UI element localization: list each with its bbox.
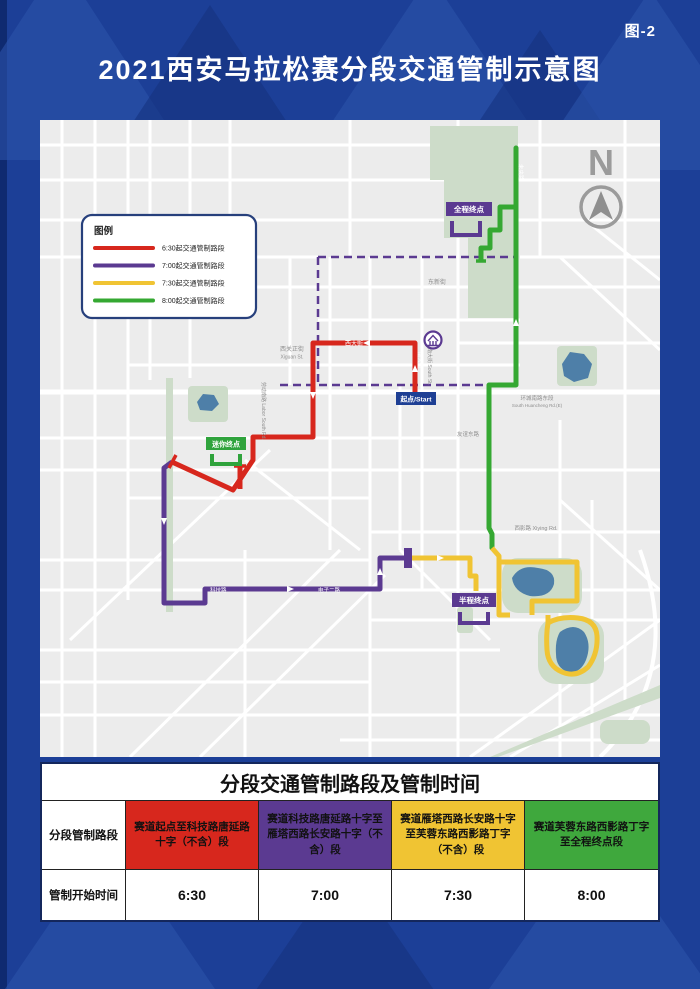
time-cell-2: 7:00 [259,870,392,920]
route-label-dianzi-2nd-road: 电子二路 [318,586,341,594]
legend-label-800: 8:00起交通管制路段 [162,296,225,305]
road-label-huancheng-cn: 环城南路东段 [520,394,554,402]
route-label-xidajie: 西大街 [345,339,363,347]
start-label: 起点/Start [400,395,433,404]
legend-label-730: 7:30起交通管制路段 [162,279,225,288]
map-canvas: 未央路 科技路 电子二路 [40,120,660,757]
mini-finish-label: 迷你终点 [211,440,240,449]
bell-tower-icon [425,332,442,349]
segment-cell-2: 赛道科技路唐延路十字至雁塔西路长安路十字（不含）段 [259,801,392,870]
time-cell-4: 8:00 [525,870,658,920]
route-label-nandajie: 南大街 [416,352,424,369]
route-label-weiyang-road: 未央路 [517,164,525,181]
legend: 图例 6:30起交通管制路段 7:00起交通管制路段 7:30起交通管制路段 8… [82,215,256,318]
poster-page: 图-2 2021西安马拉松赛分段交通管制示意图 [0,0,700,989]
north-letter: N [588,142,614,183]
road-label-nandajie: 南大街 South St. [426,348,433,385]
time-cell-1: 6:30 [126,870,259,920]
row-header-time: 管制开始时间 [42,870,126,920]
row-header-segment: 分段管制路段 [42,801,126,870]
road-label-xiying: 西影路 Xiying Rd. [514,524,558,532]
full-finish-label: 全程终点 [453,204,484,214]
figure-number-label: 图-2 [625,20,656,41]
segment-cell-3: 赛道雁塔西路长安路十字至芙蓉东路西影路丁字（不含）段 [392,801,525,870]
segment-cell-4: 赛道芙蓉东路西影路丁字至全程终点段 [525,801,658,870]
road-label-xiguan-cn: 西关正街 [280,345,304,353]
road-label-laodong: 劳动南路 Labor South Rd. [260,382,267,440]
control-schedule-table: 分段交通管制路段及管制时间 分段管制路段 赛道起点至科技路唐延路十字（不含）段 … [40,762,660,922]
segment-cell-1: 赛道起点至科技路唐延路十字（不含）段 [126,801,259,870]
time-cell-3: 7:30 [392,870,525,920]
legend-title: 图例 [94,225,113,237]
road-label-xiguan-en: Xiguan St. [280,355,303,361]
table-title: 分段交通管制路段及管制时间 [42,764,658,801]
road-label-youyi: 友谊东路 [457,430,480,438]
legend-label-630: 6:30起交通管制路段 [162,244,225,253]
half-finish-label: 半程终点 [459,595,489,605]
legend-label-700: 7:00起交通管制路段 [162,261,225,270]
poster-title: 2021西安马拉松赛分段交通管制示意图 [0,48,700,87]
traffic-control-map: 未央路 科技路 电子二路 [40,120,660,757]
road-label-dongxinjie: 东新街 [428,278,446,286]
route-label-keji-road: 科技路 [210,586,227,594]
road-label-huancheng-en: South Huancheng Rd.(E) [512,403,563,408]
